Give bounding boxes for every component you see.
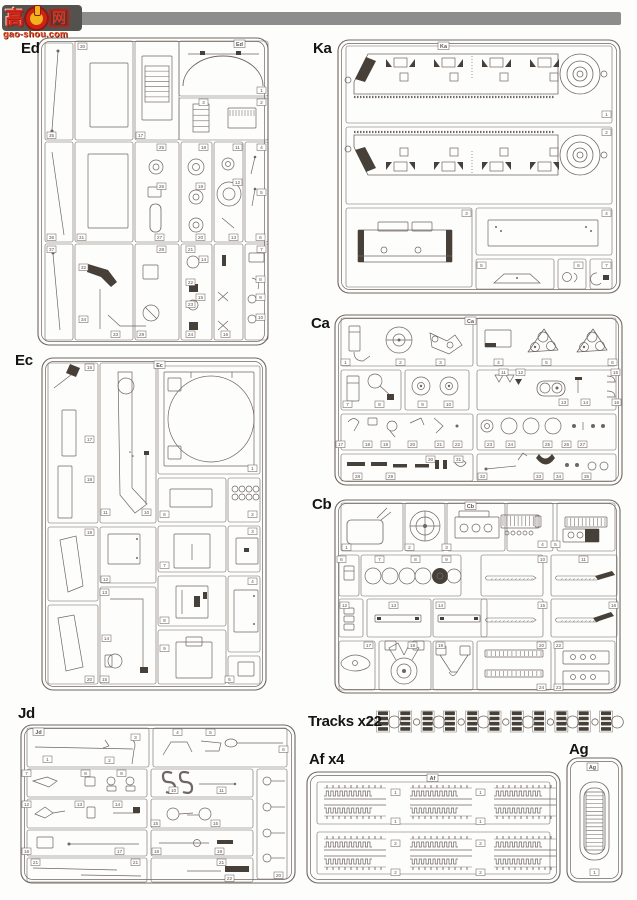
- svg-text:27: 27: [157, 235, 163, 241]
- svg-text:27: 27: [580, 442, 586, 448]
- svg-text:9: 9: [163, 646, 166, 652]
- svg-text:7: 7: [260, 247, 263, 253]
- svg-text:5: 5: [545, 360, 548, 366]
- instruction-sheet-page: 3035171323631252627181920111213456373234…: [0, 0, 637, 900]
- svg-text:17: 17: [87, 437, 93, 443]
- svg-text:9: 9: [120, 771, 123, 777]
- svg-text:13: 13: [231, 235, 237, 241]
- sprue-ka: 1234567Ka: [338, 40, 620, 293]
- svg-text:20: 20: [410, 442, 416, 448]
- svg-text:14: 14: [583, 400, 589, 406]
- svg-text:11: 11: [235, 145, 240, 151]
- svg-text:24: 24: [508, 442, 514, 448]
- svg-text:18: 18: [87, 477, 93, 483]
- label-tracks: Tracks x22: [308, 714, 382, 729]
- svg-text:26: 26: [564, 442, 570, 448]
- svg-text:4: 4: [251, 579, 254, 585]
- svg-text:24: 24: [539, 685, 545, 691]
- svg-text:21: 21: [188, 247, 194, 253]
- svg-text:2: 2: [108, 758, 111, 764]
- svg-text:10: 10: [540, 557, 546, 563]
- svg-text:14: 14: [201, 257, 207, 263]
- svg-text:34: 34: [556, 474, 562, 480]
- svg-text:6: 6: [163, 512, 166, 518]
- sprue-ca: 1234567891011121513141617181920212223242…: [335, 315, 622, 485]
- svg-text:3: 3: [465, 211, 468, 217]
- svg-text:28: 28: [159, 247, 165, 253]
- svg-text:25: 25: [159, 145, 165, 151]
- svg-text:19: 19: [198, 184, 204, 190]
- svg-text:30: 30: [428, 457, 434, 463]
- svg-text:6: 6: [611, 360, 614, 366]
- svg-text:2: 2: [479, 870, 482, 876]
- svg-text:8: 8: [378, 402, 381, 408]
- svg-text:4: 4: [176, 730, 179, 736]
- svg-text:15: 15: [153, 821, 159, 827]
- svg-text:16: 16: [87, 365, 93, 371]
- svg-text:7: 7: [25, 771, 28, 777]
- svg-text:8: 8: [84, 771, 87, 777]
- svg-text:8: 8: [163, 618, 166, 624]
- svg-text:Ec: Ec: [156, 363, 163, 369]
- svg-text:20: 20: [539, 643, 545, 649]
- svg-text:16: 16: [24, 849, 30, 855]
- svg-text:12: 12: [518, 370, 524, 376]
- svg-text:5: 5: [554, 542, 557, 548]
- svg-text:21: 21: [133, 860, 139, 866]
- svg-text:29: 29: [139, 332, 145, 338]
- svg-text:12: 12: [235, 180, 241, 186]
- svg-text:11: 11: [103, 510, 108, 516]
- svg-text:21: 21: [437, 442, 443, 448]
- svg-text:13: 13: [77, 802, 83, 808]
- svg-text:16: 16: [223, 332, 229, 338]
- svg-text:33: 33: [536, 474, 542, 480]
- svg-text:4: 4: [260, 145, 263, 151]
- svg-text:8: 8: [259, 277, 262, 283]
- sprue-cb: 1234567891011121314151617181920242223Cb: [335, 500, 620, 693]
- svg-text:33: 33: [113, 332, 119, 338]
- svg-text:17: 17: [138, 133, 144, 139]
- svg-text:32: 32: [480, 474, 486, 480]
- svg-text:21: 21: [219, 860, 225, 866]
- svg-text:Jd: Jd: [35, 730, 41, 736]
- svg-text:9: 9: [421, 402, 424, 408]
- svg-text:14: 14: [438, 603, 444, 609]
- svg-text:15: 15: [540, 603, 546, 609]
- svg-text:21: 21: [33, 860, 39, 866]
- svg-text:22: 22: [188, 280, 194, 286]
- svg-text:25: 25: [545, 442, 551, 448]
- svg-text:Af: Af: [430, 776, 436, 782]
- svg-text:3: 3: [202, 100, 205, 106]
- svg-text:13: 13: [391, 603, 397, 609]
- svg-text:22: 22: [227, 876, 233, 882]
- svg-text:23: 23: [487, 442, 493, 448]
- svg-text:5: 5: [260, 190, 263, 196]
- svg-text:Ca: Ca: [467, 319, 475, 325]
- svg-text:20: 20: [276, 873, 282, 879]
- svg-text:13: 13: [102, 590, 108, 596]
- label-ed: Ed: [21, 41, 40, 56]
- svg-text:18: 18: [365, 442, 371, 448]
- svg-text:Ag: Ag: [589, 765, 596, 771]
- svg-text:18: 18: [154, 849, 160, 855]
- svg-text:22: 22: [455, 442, 461, 448]
- svg-text:8: 8: [414, 557, 417, 563]
- svg-text:2: 2: [394, 841, 397, 847]
- svg-text:20: 20: [198, 235, 204, 241]
- svg-text:31: 31: [456, 457, 462, 463]
- svg-text:3: 3: [134, 735, 137, 741]
- svg-text:1: 1: [593, 870, 596, 876]
- svg-text:7: 7: [605, 263, 608, 269]
- svg-text:6: 6: [259, 235, 262, 241]
- svg-text:1: 1: [260, 88, 263, 94]
- svg-text:10: 10: [446, 402, 452, 408]
- svg-text:31: 31: [79, 235, 85, 241]
- svg-text:14: 14: [115, 802, 121, 808]
- svg-text:Ka: Ka: [440, 44, 448, 50]
- svg-text:15: 15: [102, 677, 108, 683]
- svg-text:32: 32: [81, 265, 87, 271]
- svg-text:12: 12: [103, 577, 109, 583]
- gear-icon: [26, 8, 47, 29]
- sprue-jd: 1234567891011121314151516171819202121212…: [21, 725, 295, 883]
- svg-text:4: 4: [541, 542, 544, 548]
- svg-text:3: 3: [251, 529, 254, 535]
- label-ca: Ca: [311, 316, 330, 331]
- svg-text:10: 10: [171, 788, 177, 794]
- svg-text:5: 5: [228, 677, 231, 683]
- watermark-char-right: 网: [49, 9, 69, 27]
- svg-text:11: 11: [501, 370, 506, 376]
- svg-text:6: 6: [577, 263, 580, 269]
- svg-text:22: 22: [556, 643, 562, 649]
- svg-text:19: 19: [87, 530, 93, 536]
- svg-text:7: 7: [346, 402, 349, 408]
- svg-text:17: 17: [366, 643, 372, 649]
- svg-text:7: 7: [163, 563, 166, 569]
- svg-text:14: 14: [104, 636, 110, 642]
- svg-text:15: 15: [613, 370, 619, 376]
- svg-text:9: 9: [445, 557, 448, 563]
- svg-text:18: 18: [410, 643, 416, 649]
- svg-text:19: 19: [217, 849, 223, 855]
- label-ka: Ka: [313, 41, 332, 56]
- svg-text:2: 2: [479, 841, 482, 847]
- svg-text:Cb: Cb: [467, 504, 475, 510]
- sprue-af: 11112222Af: [307, 772, 560, 883]
- svg-text:10: 10: [144, 510, 150, 516]
- svg-text:7: 7: [378, 557, 381, 563]
- svg-text:4: 4: [605, 211, 608, 217]
- svg-text:6: 6: [282, 747, 285, 753]
- sprue-ec: 1617181920111012131415162378495Ec: [42, 358, 266, 690]
- svg-text:20: 20: [87, 677, 93, 683]
- svg-text:5: 5: [209, 730, 212, 736]
- svg-text:2: 2: [251, 512, 254, 518]
- label-cb: Cb: [312, 497, 331, 512]
- svg-text:12: 12: [342, 603, 348, 609]
- tracks-row: [369, 711, 624, 732]
- svg-text:37: 37: [49, 247, 55, 253]
- label-ec: Ec: [15, 353, 33, 368]
- svg-text:1: 1: [46, 757, 49, 763]
- svg-text:1: 1: [479, 819, 482, 825]
- svg-text:1: 1: [394, 819, 397, 825]
- svg-text:28: 28: [355, 474, 361, 480]
- svg-text:10: 10: [258, 315, 264, 321]
- label-ag: Ag: [569, 742, 588, 757]
- svg-text:16: 16: [611, 603, 617, 609]
- svg-text:4: 4: [497, 360, 500, 366]
- svg-text:16: 16: [614, 400, 620, 406]
- svg-text:11: 11: [219, 788, 224, 794]
- svg-text:19: 19: [438, 643, 444, 649]
- svg-text:2: 2: [408, 545, 411, 551]
- svg-text:18: 18: [201, 145, 207, 151]
- svg-text:15: 15: [198, 295, 204, 301]
- watermark-char-left: 高: [5, 9, 24, 28]
- svg-text:30: 30: [80, 44, 86, 50]
- svg-text:13: 13: [561, 400, 567, 406]
- svg-text:1: 1: [344, 360, 347, 366]
- svg-text:29: 29: [388, 474, 394, 480]
- svg-text:5: 5: [480, 263, 483, 269]
- svg-text:1: 1: [394, 790, 397, 796]
- svg-text:15: 15: [213, 821, 219, 827]
- svg-text:11: 11: [581, 557, 586, 563]
- svg-text:Ed: Ed: [236, 42, 243, 48]
- svg-text:9: 9: [259, 295, 262, 301]
- svg-text:2: 2: [260, 100, 263, 106]
- watermark-domain-text: gao-shou.com: [3, 29, 68, 39]
- svg-text:17: 17: [117, 849, 123, 855]
- svg-text:2: 2: [399, 360, 402, 366]
- svg-text:1: 1: [479, 790, 482, 796]
- svg-text:26: 26: [159, 184, 165, 190]
- watermark-bar: [7, 12, 621, 25]
- sprue-ag: 1Ag: [567, 758, 622, 882]
- svg-text:36: 36: [49, 235, 55, 241]
- label-af: Af x4: [309, 752, 344, 767]
- svg-text:6: 6: [340, 557, 343, 563]
- svg-text:24: 24: [188, 332, 194, 338]
- svg-text:19: 19: [383, 442, 389, 448]
- svg-text:35: 35: [49, 133, 55, 139]
- svg-text:2: 2: [605, 130, 608, 136]
- svg-text:23: 23: [188, 302, 194, 308]
- svg-text:1: 1: [345, 545, 348, 551]
- svg-text:34: 34: [81, 317, 87, 323]
- svg-text:1: 1: [251, 466, 254, 472]
- svg-text:3: 3: [445, 545, 448, 551]
- svg-text:3: 3: [439, 360, 442, 366]
- svg-text:1: 1: [605, 112, 608, 118]
- watermark-logo: 高 网: [2, 5, 82, 31]
- svg-text:23: 23: [556, 685, 562, 691]
- sprue-ed: 3035171323631252627181920111213456373234…: [38, 38, 268, 345]
- label-jd: Jd: [18, 706, 35, 721]
- svg-text:2: 2: [394, 870, 397, 876]
- svg-text:35: 35: [584, 474, 590, 480]
- svg-text:12: 12: [24, 802, 30, 808]
- svg-text:17: 17: [338, 442, 344, 448]
